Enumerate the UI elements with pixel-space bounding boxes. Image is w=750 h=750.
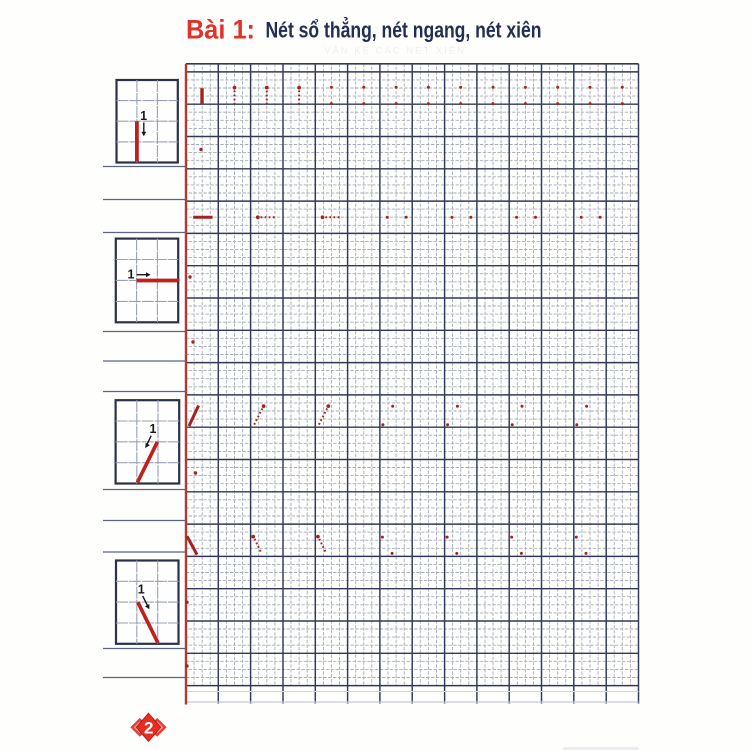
svg-text:1: 1: [140, 109, 147, 123]
svg-text:Bài 1:: Bài 1:: [186, 14, 255, 44]
svg-text:VẦN KỂ CÁC NÉT XIÊN: VẦN KỂ CÁC NÉT XIÊN: [324, 45, 466, 57]
svg-text:2: 2: [144, 719, 153, 738]
svg-text:1: 1: [150, 422, 157, 436]
svg-text:Nét sổ thẳng, nét ngang, nét x: Nét sổ thẳng, nét ngang, nét xiên: [266, 18, 542, 43]
svg-text:1: 1: [138, 583, 145, 597]
svg-text:1: 1: [128, 267, 135, 281]
